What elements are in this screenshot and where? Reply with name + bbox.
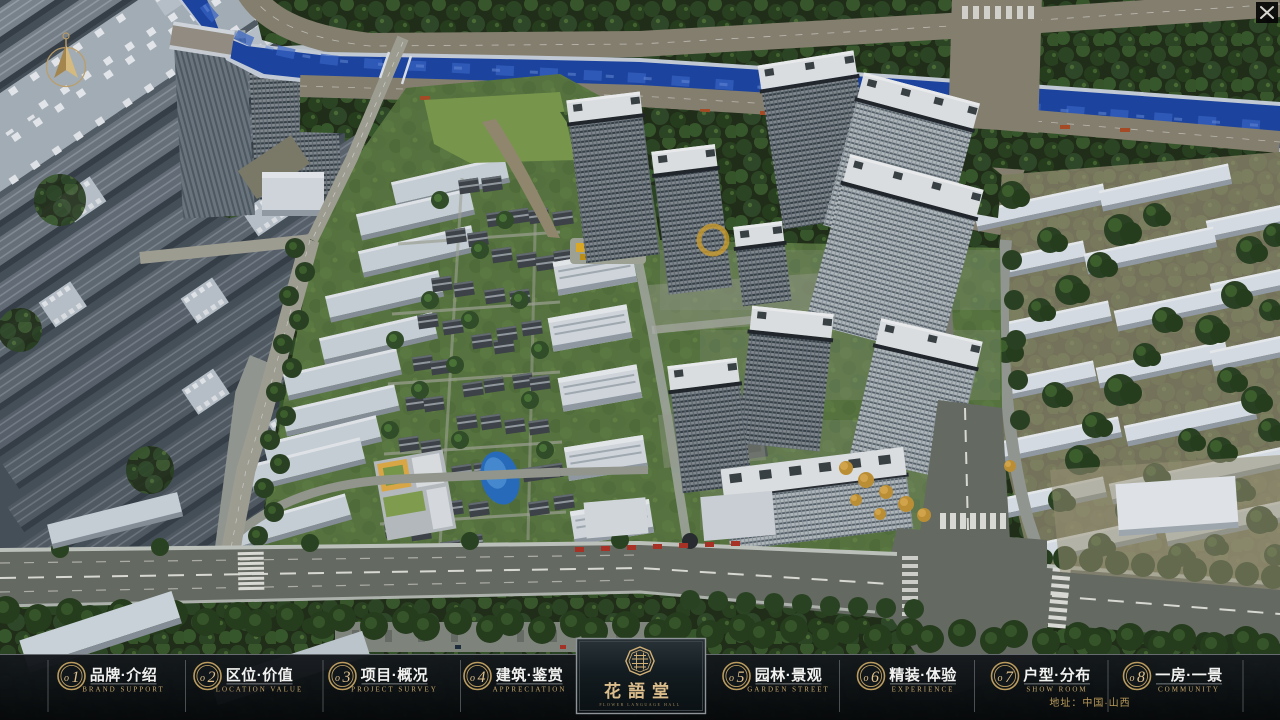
- svg-text:PROJECT SURVEY: PROJECT SURVEY: [351, 686, 438, 694]
- svg-text:户型·分布: 户型·分布: [1023, 666, 1091, 684]
- svg-text:o: o: [64, 673, 69, 684]
- svg-text:1: 1: [72, 669, 80, 686]
- svg-text:项目·概况: 项目·概况: [361, 666, 429, 684]
- svg-text:园林·景观: 园林·景观: [755, 666, 823, 684]
- svg-text:8: 8: [1137, 669, 1145, 686]
- svg-text:区位·价值: 区位·价值: [226, 666, 294, 684]
- svg-text:LOCATION VALUE: LOCATION VALUE: [216, 686, 303, 694]
- svg-text:FLOWER LANGUAGE HALL: FLOWER LANGUAGE HALL: [599, 702, 680, 707]
- svg-text:EXPERIENCE: EXPERIENCE: [892, 686, 955, 694]
- svg-text:o: o: [729, 673, 734, 684]
- svg-text:建筑·鉴赏: 建筑·鉴赏: [496, 666, 564, 684]
- svg-text:2: 2: [208, 669, 216, 686]
- svg-text:o: o: [864, 673, 869, 684]
- svg-text:一房·一景: 一房·一景: [1155, 666, 1223, 684]
- svg-text:SHOW ROOM: SHOW ROOM: [1026, 686, 1087, 694]
- svg-text:o: o: [200, 673, 205, 684]
- svg-text:GARDEN STREET: GARDEN STREET: [747, 686, 830, 694]
- svg-text:地址：中国·山西: 地址：中国·山西: [1049, 696, 1130, 709]
- svg-text:花語堂: 花語堂: [604, 681, 676, 701]
- svg-text:APPRECIATION: APPRECIATION: [493, 686, 567, 694]
- svg-text:o: o: [1130, 673, 1135, 684]
- svg-text:COMMUNITY: COMMUNITY: [1158, 686, 1220, 694]
- svg-text:品牌·介绍: 品牌·介绍: [90, 666, 158, 684]
- svg-text:精装·体验: 精装·体验: [889, 666, 957, 684]
- svg-text:o: o: [470, 673, 475, 684]
- svg-text:BRAND SUPPORT: BRAND SUPPORT: [82, 686, 165, 694]
- svg-text:6: 6: [871, 669, 879, 686]
- svg-text:4: 4: [478, 669, 486, 686]
- svg-text:o: o: [335, 673, 340, 684]
- svg-text:o: o: [998, 673, 1003, 684]
- svg-text:3: 3: [342, 669, 351, 686]
- svg-text:7: 7: [1005, 669, 1014, 686]
- svg-text:5: 5: [737, 669, 745, 686]
